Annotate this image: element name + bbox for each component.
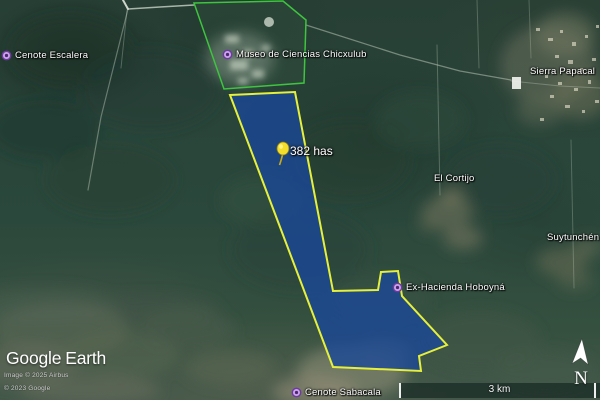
placemark-label: Cenote Escalera	[15, 50, 88, 61]
placemark-suytunchen[interactable]: Suytunchén	[547, 232, 599, 243]
logo-earth-text: Earth	[65, 348, 106, 368]
compass[interactable]: N	[564, 338, 598, 386]
placemark-label: El Cortijo	[434, 173, 475, 184]
hacienda-marker-icon	[392, 282, 403, 293]
google-earth-map[interactable]: Cenote Escalera Museo de Ciencias Chicxu…	[0, 0, 600, 400]
placemark-cenote-escalera[interactable]: Cenote Escalera	[1, 50, 88, 61]
imagery-attribution: Image © 2025 Airbus	[4, 372, 69, 379]
placemark-label: Museo de Ciencias Chicxulub	[236, 49, 367, 60]
town-sign	[512, 77, 521, 89]
placemark-label: Cenote Sabacala	[305, 387, 381, 398]
placemark-sierra-papacal[interactable]: Sierra Papacal	[530, 66, 595, 77]
parcel-area-label: 382 has	[290, 144, 333, 158]
museum-marker-icon	[222, 49, 233, 60]
placemark-label: Ex-Hacienda Hoboyná	[406, 282, 505, 293]
google-earth-logo: GoogleEarth	[6, 348, 106, 369]
copyright-attribution: © 2023 Google	[4, 385, 50, 392]
placemark-label: Sierra Papacal	[530, 66, 595, 77]
north-arrow-icon	[564, 338, 598, 366]
cenote-marker-icon	[291, 387, 302, 398]
placemark-museo-chicxulub[interactable]: Museo de Ciencias Chicxulub	[222, 49, 367, 60]
placemark-cenote-sabacala[interactable]: Cenote Sabacala	[291, 387, 381, 398]
cenote-marker-icon	[1, 50, 12, 61]
logo-google-text: Google	[6, 348, 61, 368]
placemark-el-cortijo[interactable]: El Cortijo	[434, 173, 475, 184]
placemark-label: Suytunchén	[547, 232, 599, 243]
compass-north-label: N	[564, 369, 598, 388]
satellite-imagery	[0, 0, 600, 400]
placemark-ex-hacienda-hoboyna[interactable]: Ex-Hacienda Hoboyná	[392, 282, 505, 293]
